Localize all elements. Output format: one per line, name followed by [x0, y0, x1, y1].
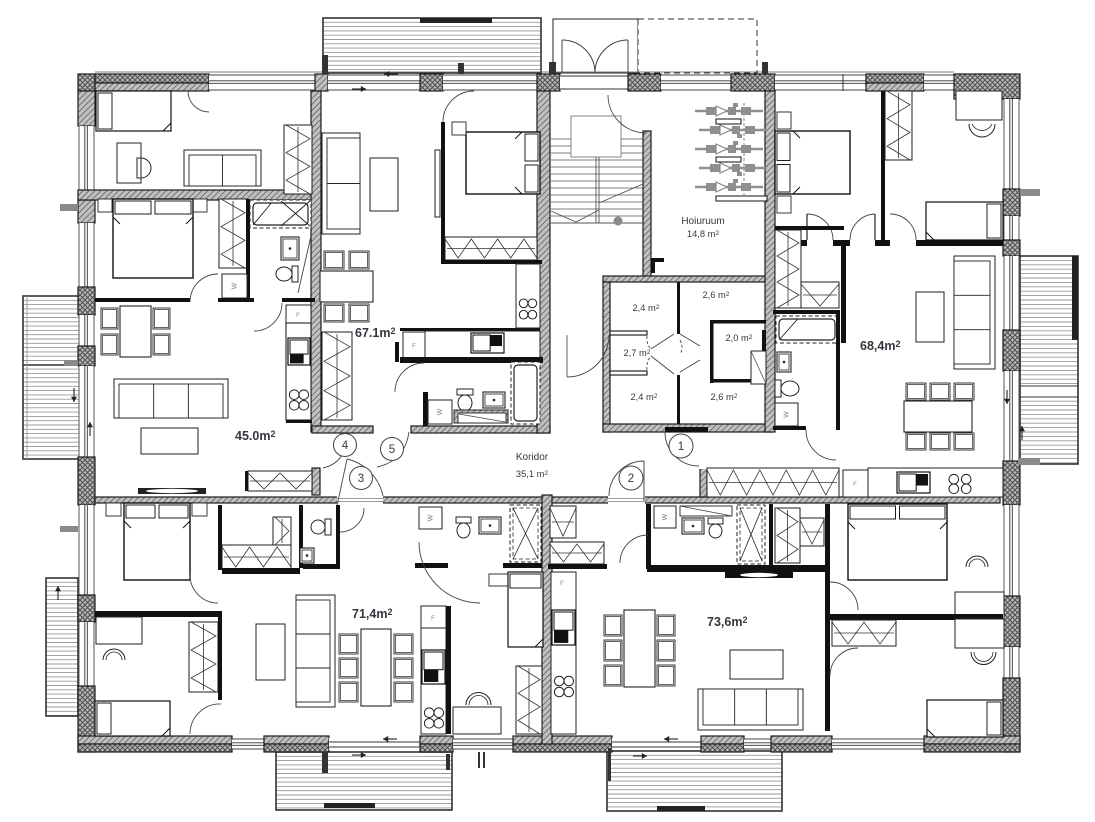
- svg-text:45.0m2: 45.0m2: [235, 429, 275, 443]
- svg-text:2,7 m2: 2,7 m2: [624, 348, 651, 358]
- svg-text:68,4m2: 68,4m2: [860, 339, 900, 353]
- svg-text:14,8 m2: 14,8 m2: [687, 229, 719, 239]
- svg-text:W: W: [427, 514, 434, 521]
- svg-text:2,6 m2: 2,6 m2: [711, 392, 738, 402]
- svg-text:W: W: [437, 408, 444, 415]
- svg-text:2,0 m2: 2,0 m2: [726, 333, 753, 343]
- svg-text:2,4 m2: 2,4 m2: [633, 303, 660, 313]
- svg-text:3: 3: [358, 473, 364, 485]
- svg-text:F: F: [560, 581, 564, 587]
- svg-text:2,4 m2: 2,4 m2: [631, 392, 658, 402]
- svg-text:67.1m2: 67.1m2: [355, 326, 395, 340]
- svg-text:F: F: [412, 344, 416, 350]
- svg-text:Hoiuruum: Hoiuruum: [681, 216, 724, 227]
- svg-text:73,6m2: 73,6m2: [707, 615, 747, 629]
- svg-text:Koridor: Koridor: [516, 452, 549, 463]
- svg-text:W: W: [783, 411, 790, 418]
- svg-text:4: 4: [342, 440, 349, 452]
- svg-text:F: F: [853, 482, 857, 488]
- svg-text:W: W: [662, 513, 669, 520]
- svg-text:35,1 m2: 35,1 m2: [516, 469, 548, 479]
- svg-text:W: W: [231, 282, 238, 289]
- svg-text:F: F: [296, 313, 300, 319]
- svg-text:71,4m2: 71,4m2: [352, 607, 392, 621]
- svg-text:1: 1: [678, 441, 684, 453]
- svg-text:2: 2: [628, 473, 634, 485]
- svg-text:F: F: [431, 616, 435, 622]
- svg-text:2,6 m2: 2,6 m2: [703, 290, 730, 300]
- svg-text:5: 5: [389, 444, 395, 456]
